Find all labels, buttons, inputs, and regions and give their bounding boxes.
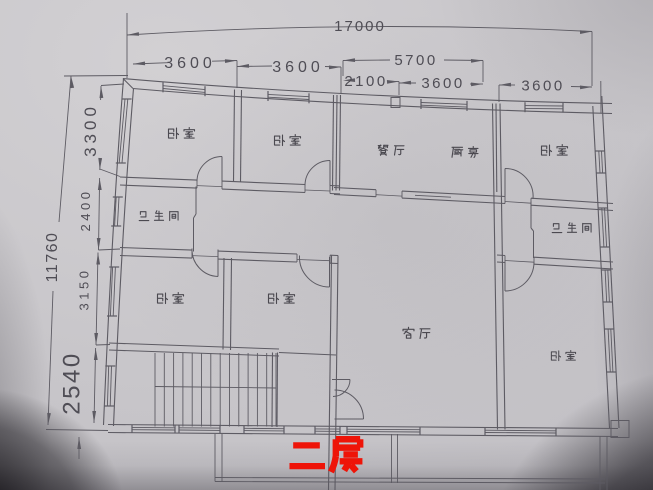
svg-text:3300: 3300 (81, 103, 100, 157)
svg-text:3150: 3150 (77, 268, 92, 311)
svg-text:5700: 5700 (394, 52, 437, 69)
svg-text:3600: 3600 (521, 78, 564, 95)
svg-text:3600: 3600 (164, 55, 216, 72)
svg-text:11760: 11760 (44, 232, 61, 283)
svg-text:2100: 2100 (344, 73, 387, 90)
svg-text:17000: 17000 (334, 18, 386, 35)
svg-text:3600: 3600 (421, 75, 464, 92)
svg-text:2540: 2540 (59, 351, 86, 414)
svg-text:2400: 2400 (78, 189, 93, 232)
svg-text:3600: 3600 (272, 59, 324, 76)
